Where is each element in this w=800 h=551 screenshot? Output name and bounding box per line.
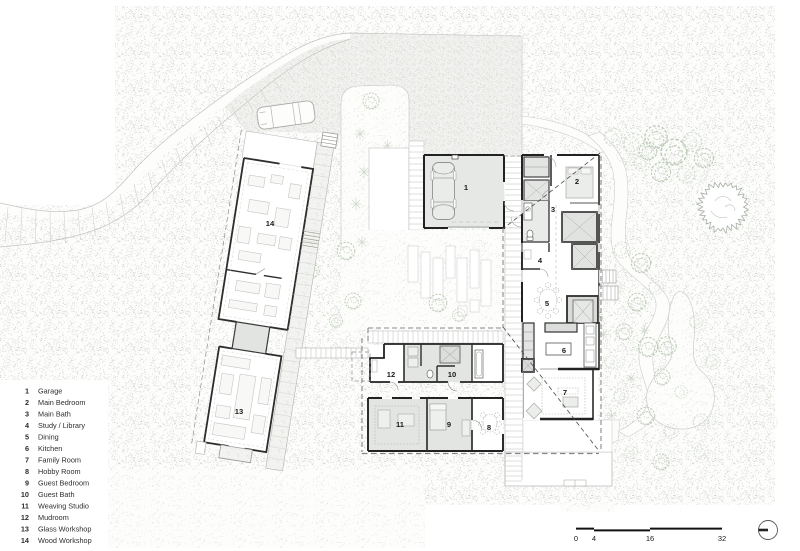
svg-text:5: 5: [25, 433, 29, 442]
svg-text:3: 3: [25, 410, 29, 419]
svg-text:13: 13: [235, 407, 243, 416]
svg-text:32: 32: [718, 534, 726, 543]
svg-text:8: 8: [487, 423, 491, 432]
svg-text:Dining: Dining: [38, 433, 59, 442]
svg-text:Family Room: Family Room: [38, 456, 81, 465]
svg-text:14: 14: [266, 219, 275, 228]
svg-text:Main Bath: Main Bath: [38, 410, 71, 419]
svg-text:Hobby Room: Hobby Room: [38, 467, 81, 476]
svg-text:2: 2: [25, 398, 29, 407]
svg-text:2: 2: [575, 177, 579, 186]
svg-text:Guest Bedroom: Guest Bedroom: [38, 479, 89, 488]
svg-text:14: 14: [21, 536, 30, 545]
svg-text:10: 10: [21, 490, 29, 499]
svg-text:12: 12: [21, 513, 29, 522]
svg-text:7: 7: [25, 456, 29, 465]
svg-text:9: 9: [25, 479, 29, 488]
svg-text:6: 6: [562, 346, 566, 355]
svg-text:Kitchen: Kitchen: [38, 444, 62, 453]
svg-text:4: 4: [592, 534, 596, 543]
svg-text:Weaving Studio: Weaving Studio: [38, 502, 89, 511]
svg-text:9: 9: [447, 420, 451, 429]
svg-text:8: 8: [25, 467, 29, 476]
svg-text:11: 11: [21, 502, 29, 511]
svg-text:6: 6: [25, 444, 29, 453]
svg-text:11: 11: [396, 420, 405, 429]
svg-text:16: 16: [646, 534, 654, 543]
svg-text:Study / Library: Study / Library: [38, 421, 85, 430]
svg-text:Glass Workshop: Glass Workshop: [38, 525, 91, 534]
svg-text:3: 3: [551, 205, 555, 214]
svg-text:1: 1: [25, 387, 29, 396]
svg-text:13: 13: [21, 525, 29, 534]
svg-text:12: 12: [387, 370, 395, 379]
svg-text:Garage: Garage: [38, 387, 62, 396]
svg-text:10: 10: [448, 370, 456, 379]
svg-text:0: 0: [574, 534, 578, 543]
svg-text:Mudroom: Mudroom: [38, 513, 69, 522]
svg-text:7: 7: [563, 388, 567, 397]
svg-text:Main Bedroom: Main Bedroom: [38, 398, 85, 407]
svg-text:Wood Workshop: Wood Workshop: [38, 536, 92, 545]
svg-text:Guest Bath: Guest Bath: [38, 490, 75, 499]
